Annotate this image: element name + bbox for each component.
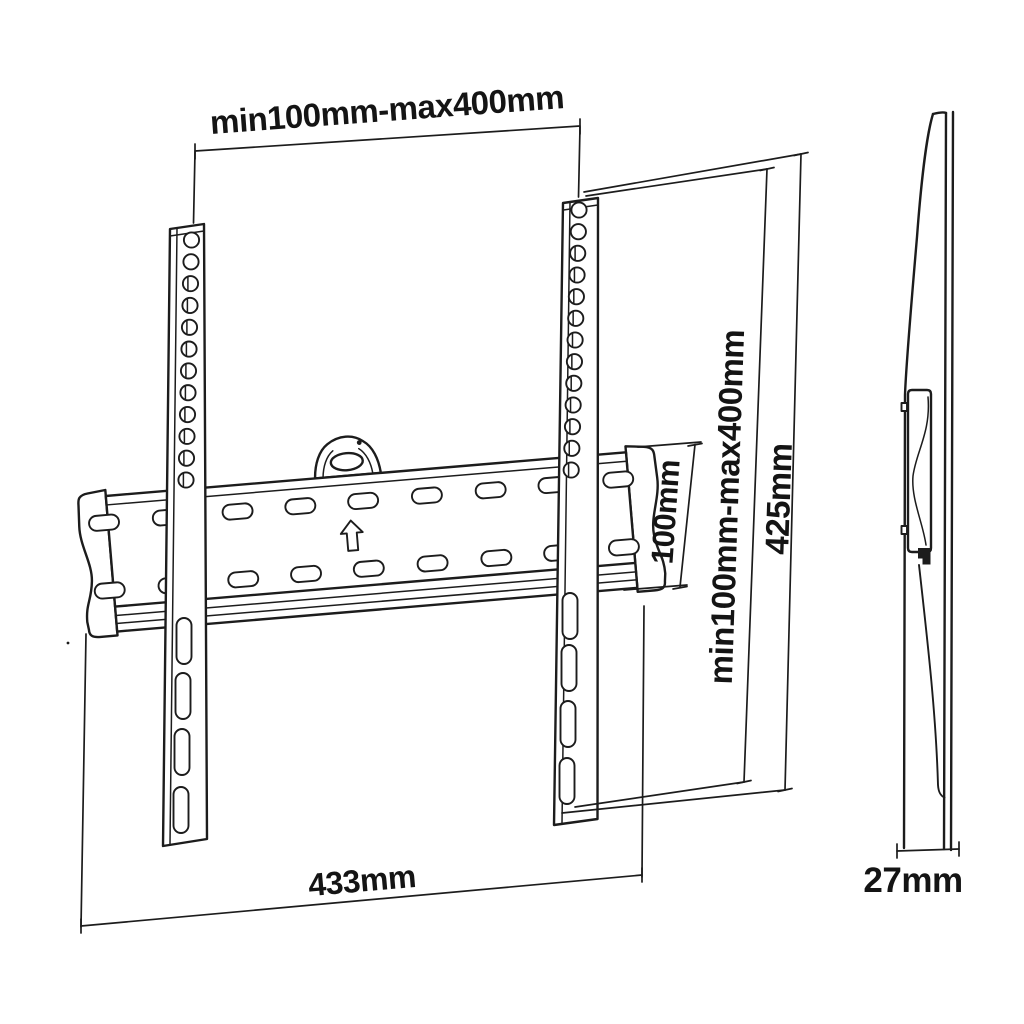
- dim-label-depth: 27mm: [863, 861, 962, 901]
- bracket-foot: [918, 548, 931, 559]
- dim-depth: [897, 842, 959, 858]
- dim-label-plate-height: 100mm: [644, 459, 687, 566]
- dim-label-bracket-height: 425mm: [758, 443, 800, 556]
- technical-drawing-page: min100mm-max400mm 433mm 100mm min100mm-m…: [0, 0, 1024, 1024]
- front-view: [67, 198, 667, 846]
- print-artifact-dot: [67, 642, 70, 645]
- side-view: [902, 112, 954, 850]
- right-rail: [554, 198, 598, 825]
- left-rail: [163, 224, 207, 846]
